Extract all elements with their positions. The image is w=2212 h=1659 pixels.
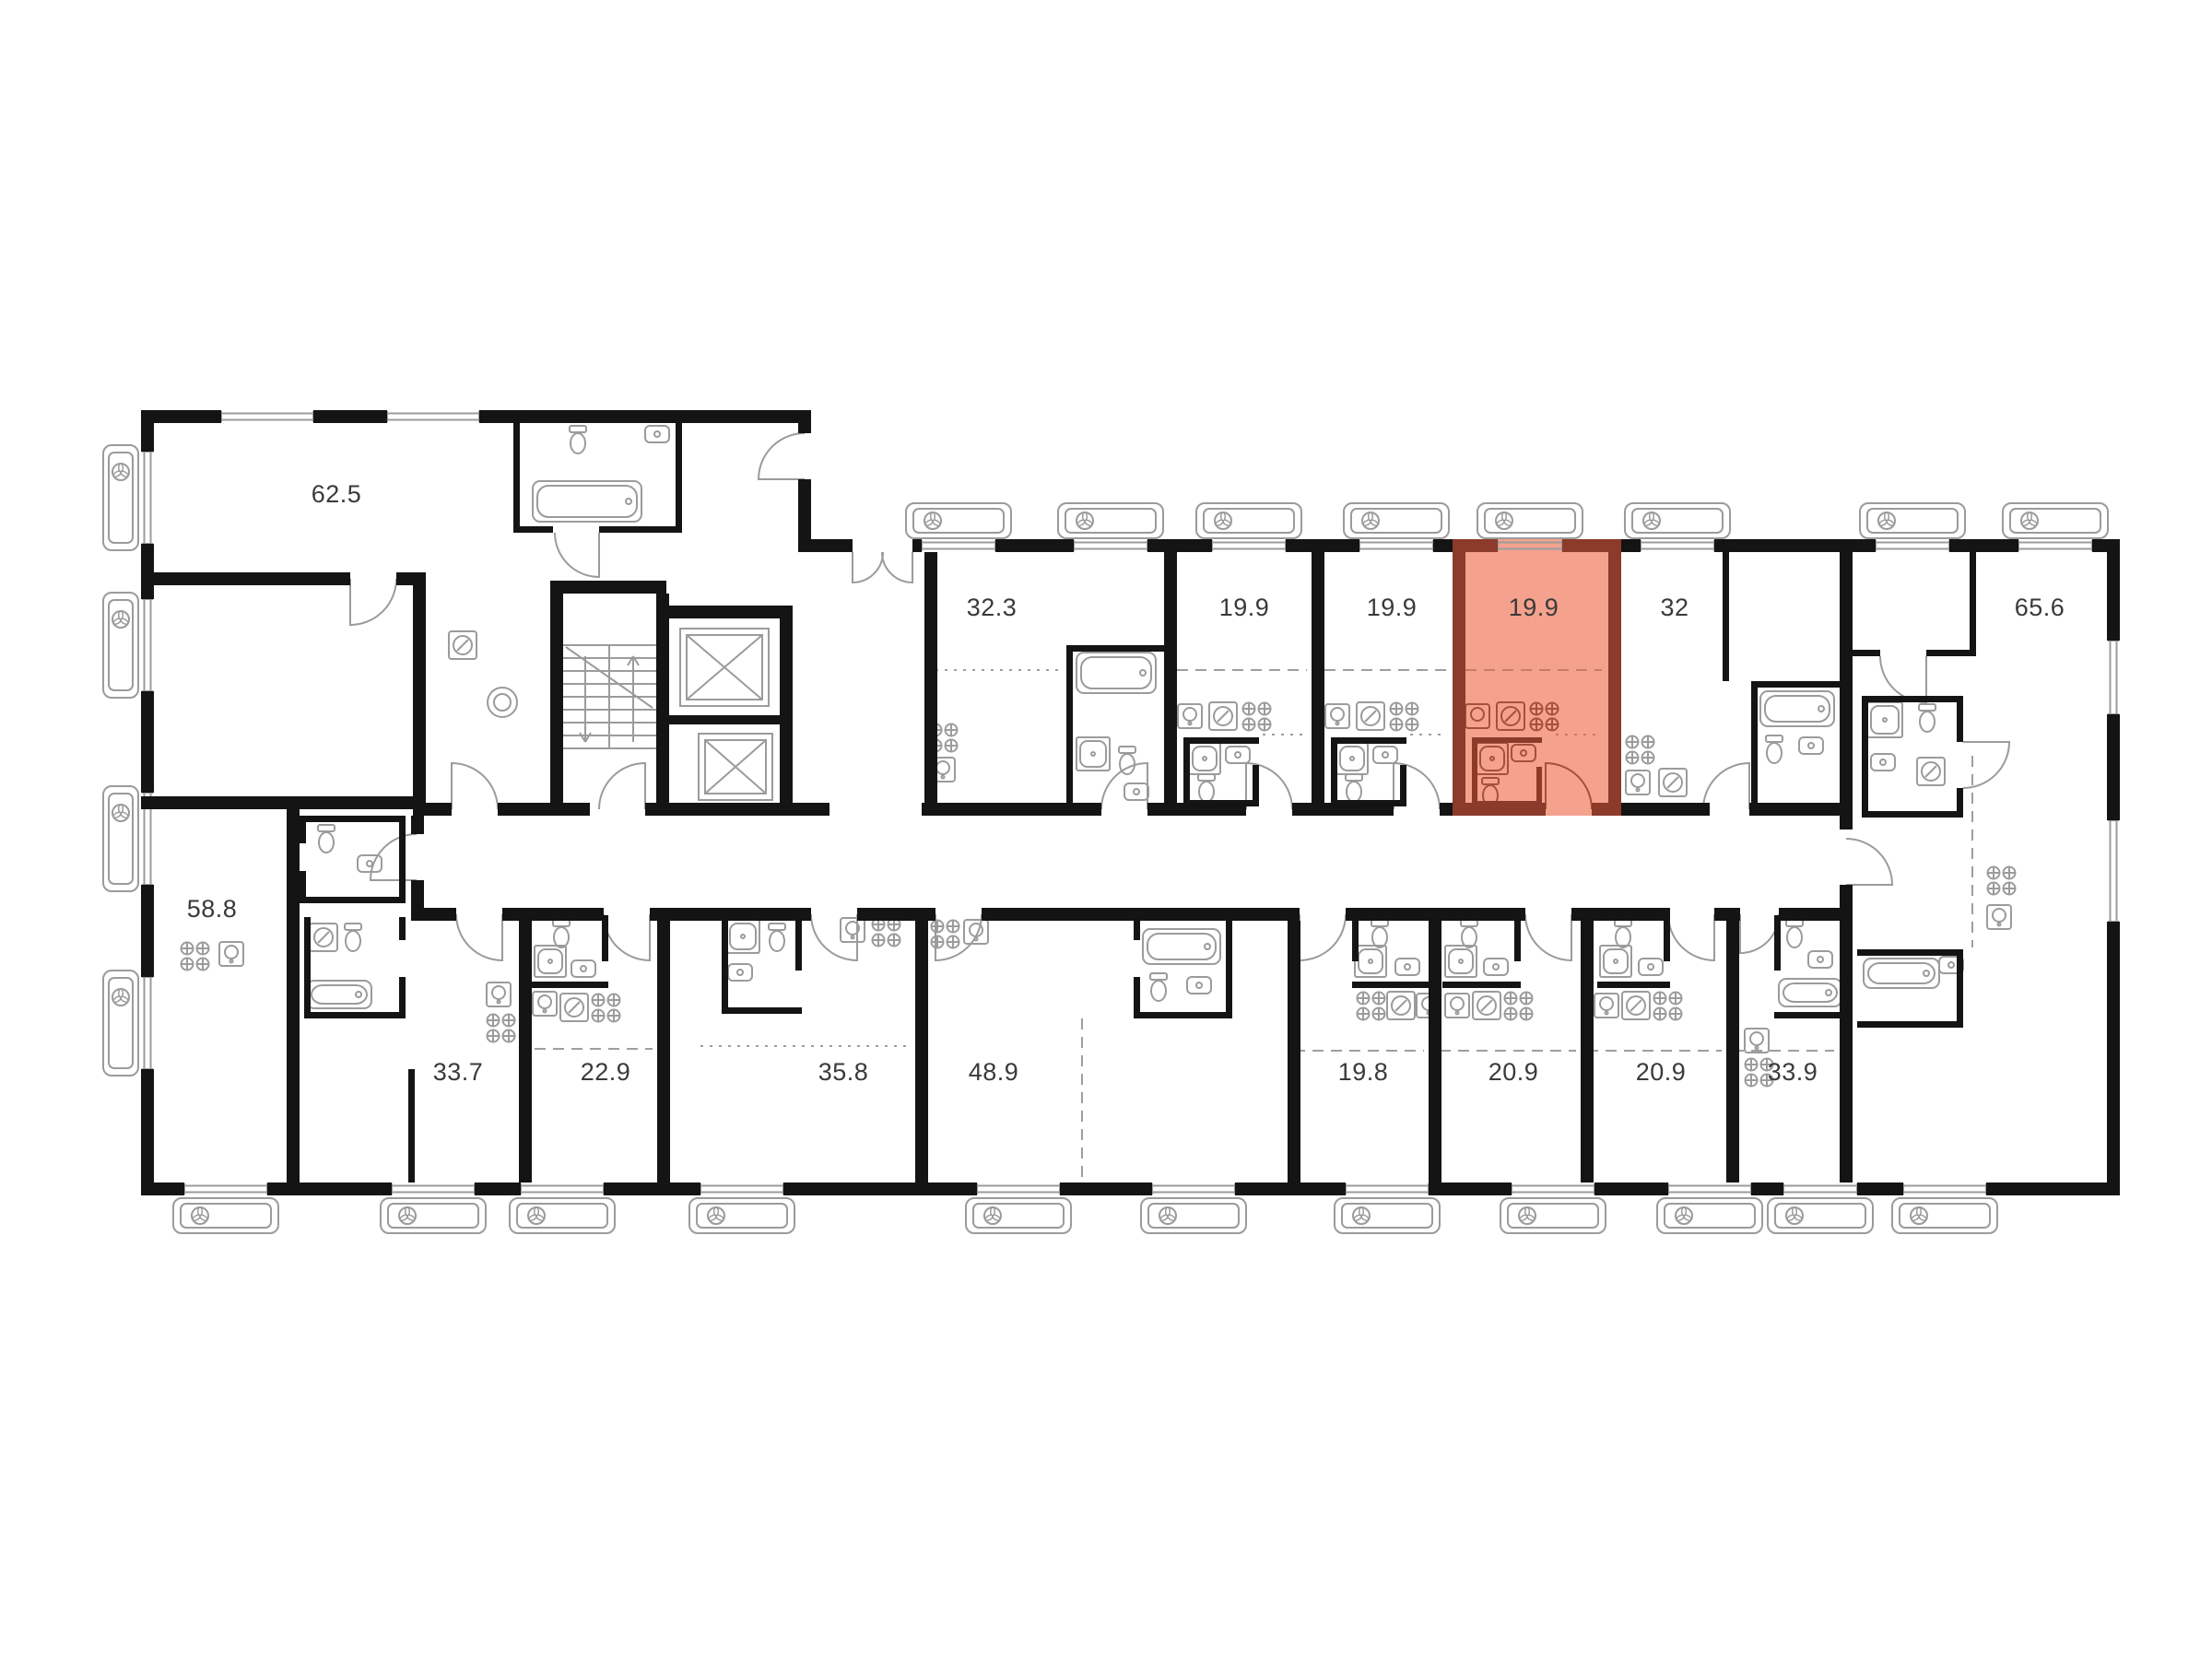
apartment-unit-32[interactable]	[1610, 565, 1739, 657]
apartment-unit-58.8[interactable]	[147, 866, 276, 959]
apartment-unit-20.9[interactable]	[1596, 1030, 1725, 1122]
apartment-unit-19.8[interactable]	[1299, 1030, 1428, 1122]
apartment-unit-20.9[interactable]	[1449, 1030, 1578, 1122]
apartment-unit-19.9[interactable]	[1327, 565, 1456, 657]
apartment-unit-65.6[interactable]	[1975, 565, 2104, 657]
apartment-hotspots-layer	[147, 452, 2104, 1122]
apartment-unit-33.7[interactable]	[394, 1030, 523, 1122]
apartment-unit-19.9-highlighted[interactable]	[1469, 565, 1598, 657]
apartment-unit-33.9[interactable]	[1728, 1030, 1857, 1122]
floor-plan-svg: 62.532.319.919.919.93265.658.833.722.935…	[0, 0, 2212, 1659]
apartment-unit-48.9[interactable]	[929, 1030, 1058, 1122]
apartment-unit-62.5[interactable]	[272, 452, 401, 544]
apartment-unit-32.3[interactable]	[927, 565, 1056, 657]
apartment-unit-22.9[interactable]	[541, 1030, 670, 1122]
floor-plan-page: 62.532.319.919.919.93265.658.833.722.935…	[0, 0, 2212, 1659]
apartment-unit-19.9[interactable]	[1180, 565, 1309, 657]
apartment-unit-35.8[interactable]	[779, 1030, 908, 1122]
